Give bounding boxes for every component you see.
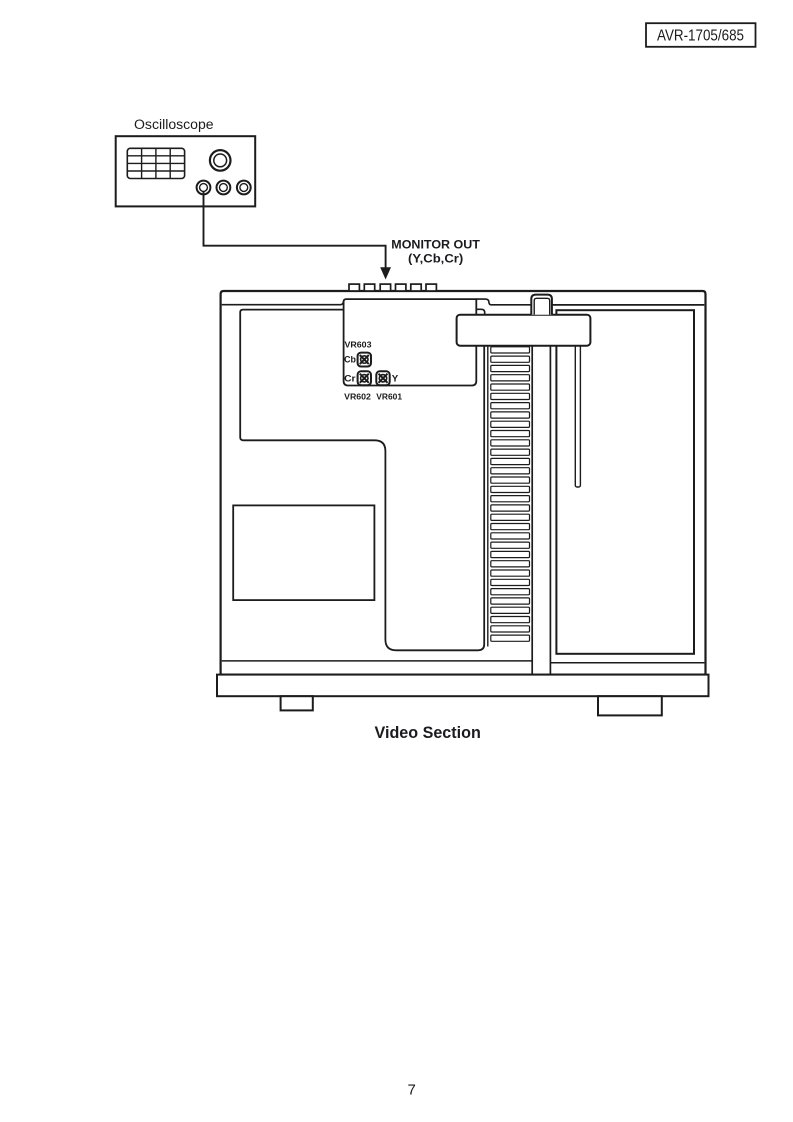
svg-text:Oscilloscope: Oscilloscope (134, 117, 214, 133)
svg-text:Video Section: Video Section (375, 724, 481, 742)
svg-text:7: 7 (408, 1082, 416, 1099)
svg-text:Y: Y (392, 374, 399, 384)
svg-text:Cb: Cb (344, 355, 356, 365)
svg-text:VR601: VR601 (376, 392, 402, 402)
svg-text:VR602: VR602 (344, 392, 371, 402)
svg-text:(Y,Cb,Cr): (Y,Cb,Cr) (408, 252, 463, 266)
svg-text:AVR-1705/685: AVR-1705/685 (657, 27, 744, 44)
svg-text:VR603: VR603 (345, 340, 372, 350)
svg-text:MONITOR OUT: MONITOR OUT (391, 238, 480, 252)
svg-text:Cr: Cr (344, 374, 356, 384)
